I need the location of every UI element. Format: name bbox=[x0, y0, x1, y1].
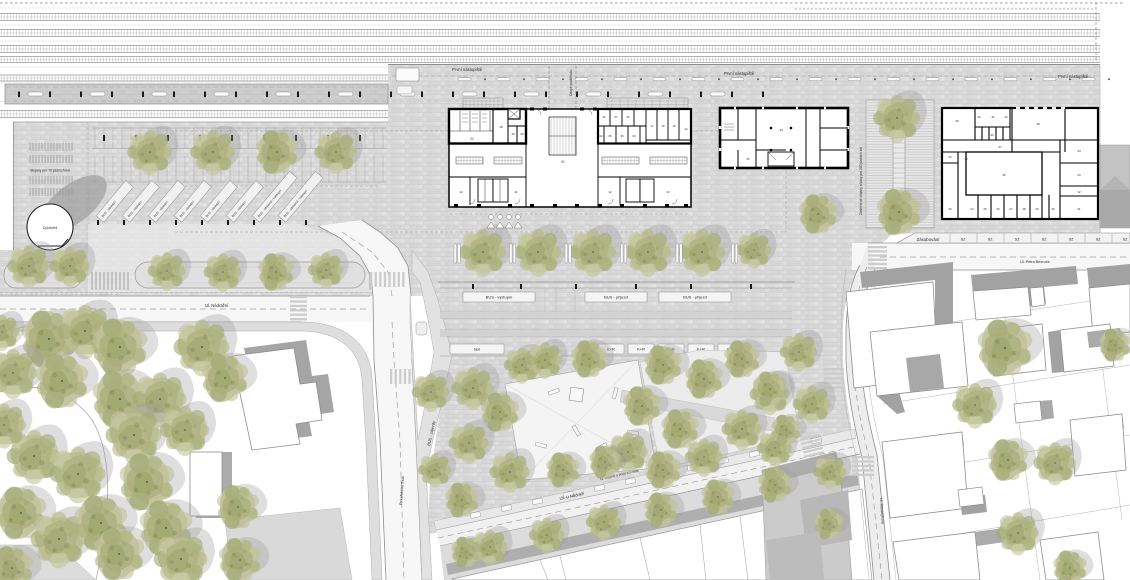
svg-text:27: 27 bbox=[1009, 207, 1013, 211]
svg-text:35: 35 bbox=[1002, 173, 1006, 177]
svg-text:40: 40 bbox=[977, 115, 981, 119]
svg-text:01: 01 bbox=[561, 160, 565, 164]
svg-text:30: 30 bbox=[1051, 207, 1055, 211]
svg-text:11: 11 bbox=[514, 190, 517, 194]
svg-text:31: 31 bbox=[1077, 207, 1081, 211]
svg-text:03: 03 bbox=[602, 115, 606, 119]
svg-text:45: 45 bbox=[746, 157, 750, 161]
svg-text:SZ: SZ bbox=[988, 238, 994, 242]
svg-text:43: 43 bbox=[990, 133, 994, 137]
svg-text:BUS - příjezd: BUS - příjezd bbox=[683, 294, 707, 299]
svg-text:Cyklověž: Cyklověž bbox=[43, 226, 58, 230]
svg-text:32: 32 bbox=[1077, 190, 1081, 194]
svg-text:29: 29 bbox=[1035, 207, 1039, 211]
svg-text:02: 02 bbox=[599, 134, 603, 138]
svg-text:BUS - výstupní: BUS - výstupní bbox=[486, 294, 514, 299]
svg-text:První nástupiště: První nástupiště bbox=[452, 67, 483, 72]
svg-text:SZ: SZ bbox=[1069, 238, 1075, 242]
svg-text:28: 28 bbox=[1022, 207, 1026, 211]
svg-text:SZ: SZ bbox=[1042, 238, 1048, 242]
svg-text:K+R: K+R bbox=[637, 346, 645, 351]
svg-text:22: 22 bbox=[948, 155, 952, 159]
svg-text:Zásobování: Zásobování bbox=[917, 237, 941, 242]
svg-text:První nástupiště: První nástupiště bbox=[724, 71, 755, 76]
svg-text:42: 42 bbox=[1004, 115, 1008, 119]
svg-text:36: 36 bbox=[620, 134, 624, 138]
svg-text:33: 33 bbox=[1077, 173, 1081, 177]
svg-text:Obrys podchodu: Obrys podchodu bbox=[569, 70, 573, 96]
svg-text:05: 05 bbox=[626, 115, 630, 119]
svg-text:12: 12 bbox=[459, 190, 463, 194]
svg-text:19: 19 bbox=[511, 132, 515, 136]
svg-text:BUS - příjezd: BUS - příjezd bbox=[604, 294, 628, 299]
svg-text:36: 36 bbox=[964, 157, 968, 161]
svg-text:20: 20 bbox=[520, 132, 524, 136]
svg-text:Stojany pro 70 jízdních kol: Stojany pro 70 jízdních kol bbox=[30, 169, 70, 173]
svg-text:38: 38 bbox=[1036, 122, 1040, 126]
svg-text:taxi: taxi bbox=[474, 346, 480, 351]
svg-text:12: 12 bbox=[608, 190, 612, 194]
svg-text:16: 16 bbox=[661, 124, 665, 128]
svg-text:Ul. Petra Bezruče: Ul. Petra Bezruče bbox=[1020, 260, 1050, 264]
svg-text:34: 34 bbox=[1077, 149, 1081, 153]
svg-text:Ul. Nádražní: Ul. Nádražní bbox=[205, 303, 229, 308]
svg-text:První nástupiště: První nástupiště bbox=[1058, 74, 1089, 79]
svg-text:15: 15 bbox=[672, 124, 676, 128]
svg-text:25: 25 bbox=[983, 207, 987, 211]
svg-text:14: 14 bbox=[684, 127, 688, 131]
svg-text:04: 04 bbox=[632, 134, 636, 138]
svg-text:37: 37 bbox=[998, 145, 1002, 149]
svg-text:21: 21 bbox=[470, 137, 474, 141]
svg-text:41: 41 bbox=[991, 115, 995, 119]
svg-text:23: 23 bbox=[948, 207, 952, 211]
svg-text:18: 18 bbox=[499, 125, 503, 129]
svg-text:26: 26 bbox=[996, 207, 1000, 211]
svg-text:17: 17 bbox=[650, 124, 654, 128]
svg-text:13: 13 bbox=[666, 190, 670, 194]
svg-text:39: 39 bbox=[955, 119, 959, 123]
svg-text:07: 07 bbox=[614, 115, 618, 119]
svg-text:06: 06 bbox=[608, 134, 612, 138]
svg-text:24: 24 bbox=[970, 207, 974, 211]
svg-text:SZ: SZ bbox=[1015, 238, 1021, 242]
svg-text:SZ: SZ bbox=[961, 238, 967, 242]
svg-text:Zastřešené stojany a boxy pro: Zastřešené stojany a boxy pro 280 jízdní… bbox=[859, 147, 863, 215]
svg-text:SZ: SZ bbox=[1123, 238, 1129, 242]
svg-text:SZ: SZ bbox=[1096, 238, 1102, 242]
svg-text:44: 44 bbox=[779, 128, 783, 132]
